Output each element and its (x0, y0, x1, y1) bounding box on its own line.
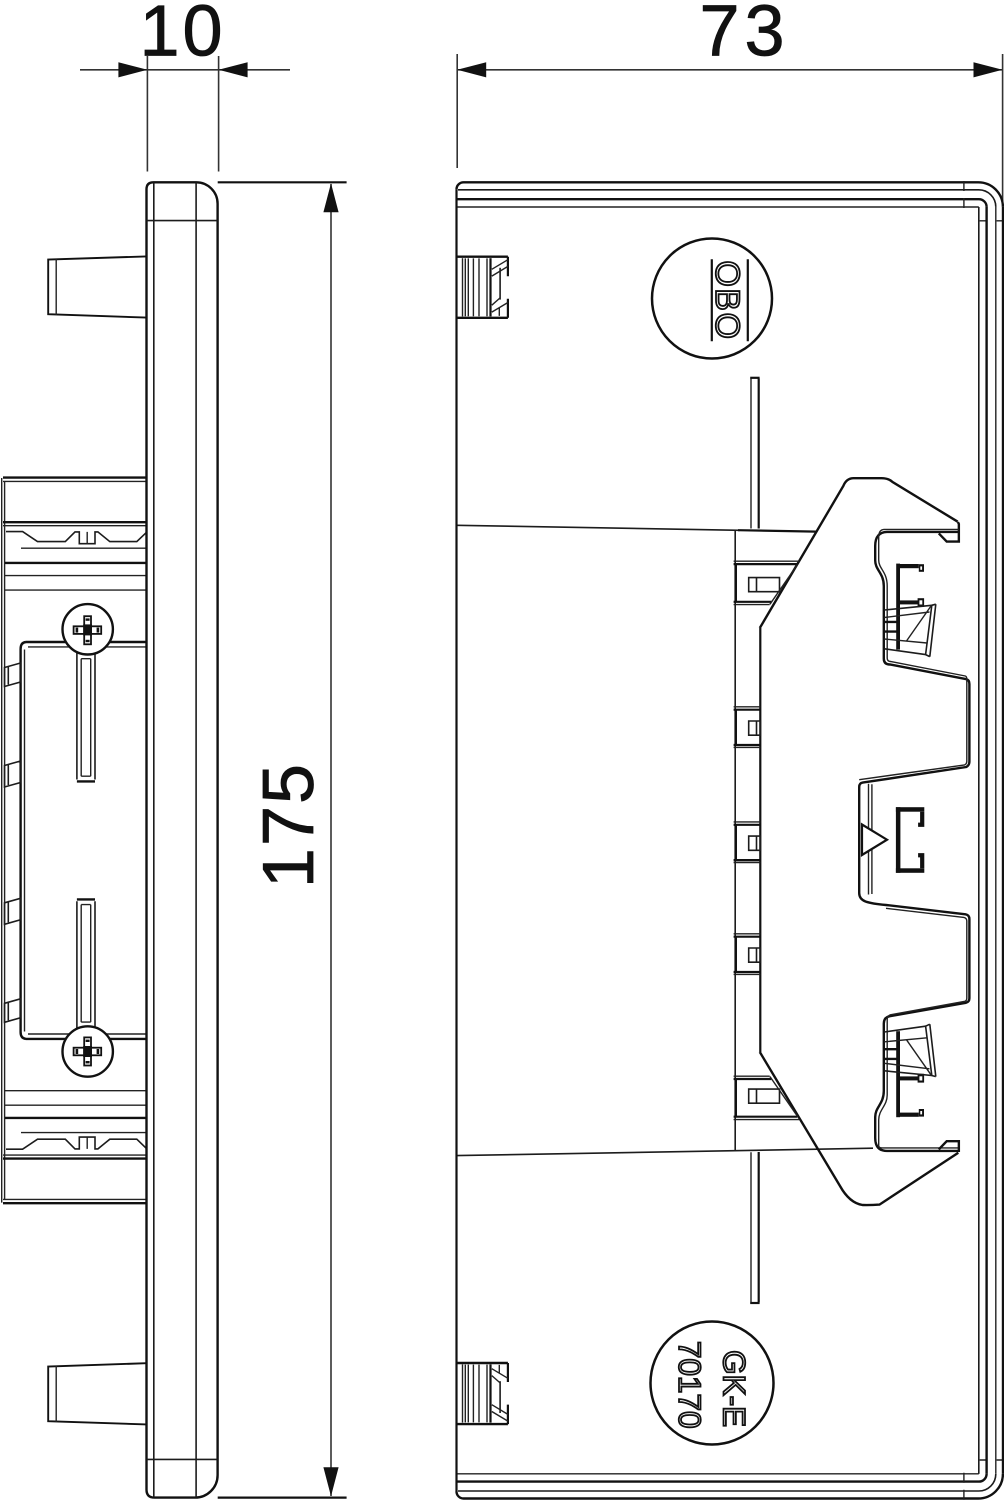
svg-text:10: 10 (139, 0, 225, 72)
svg-text:GK-E: GK-E (717, 1350, 753, 1427)
svg-text:73: 73 (699, 0, 789, 71)
svg-text:175: 175 (249, 762, 329, 888)
svg-text:70170: 70170 (672, 1341, 708, 1429)
svg-text:OBO: OBO (708, 260, 746, 340)
